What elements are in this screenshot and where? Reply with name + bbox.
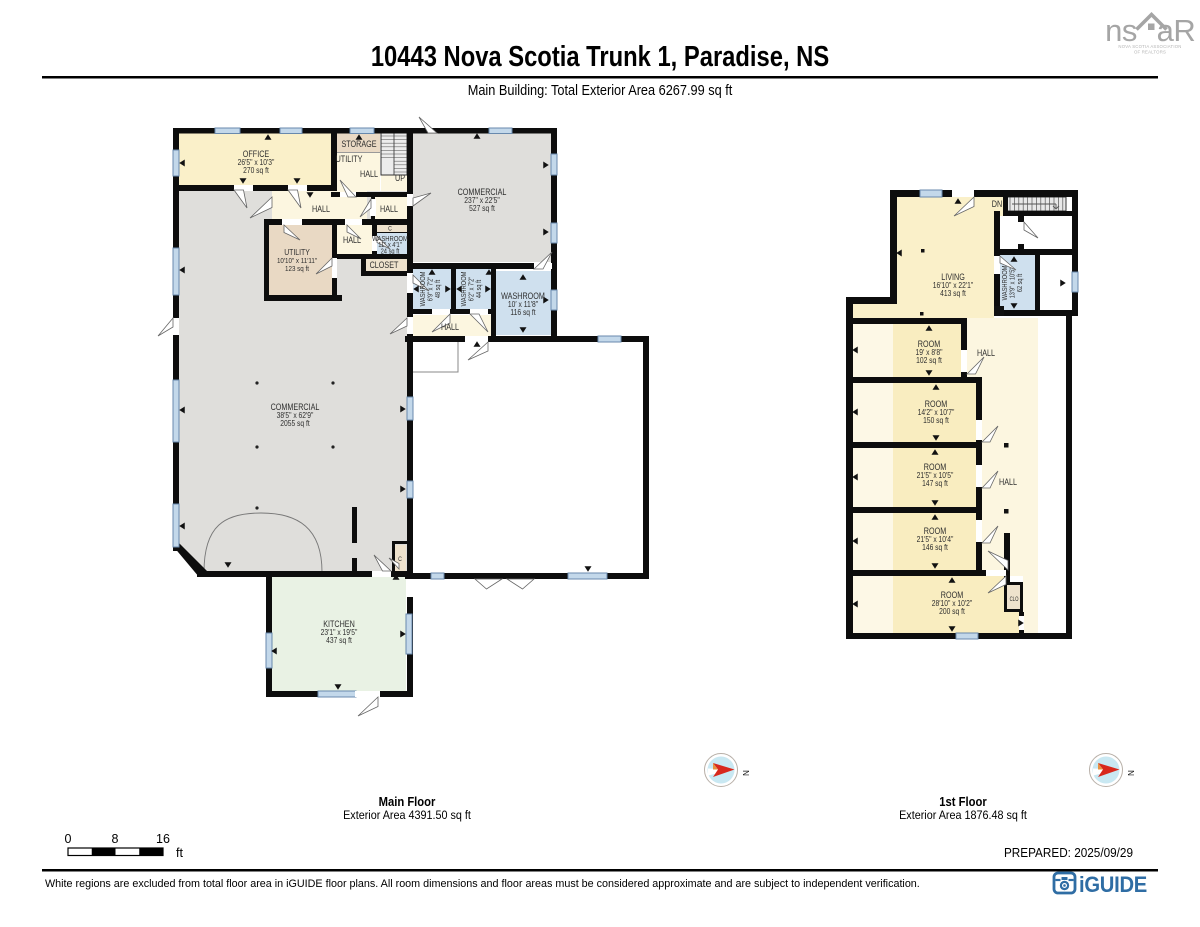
svg-text:HALL: HALL: [343, 235, 361, 245]
svg-text:62 sq ft: 62 sq ft: [1016, 274, 1024, 293]
svg-text:Main Floor: Main Floor: [379, 794, 436, 809]
svg-text:HALL: HALL: [977, 348, 995, 358]
svg-text:C: C: [398, 557, 402, 564]
svg-text:UTILITY: UTILITY: [336, 154, 363, 164]
svg-text:2055 sq ft: 2055 sq ft: [280, 418, 310, 428]
svg-text:146 sq ft: 146 sq ft: [922, 542, 949, 552]
svg-text:44 sq ft: 44 sq ft: [475, 280, 483, 299]
svg-text:102 sq ft: 102 sq ft: [916, 355, 943, 365]
svg-text:HALL: HALL: [380, 204, 398, 214]
svg-text:N: N: [741, 770, 750, 776]
svg-text:UP: UP: [395, 173, 405, 183]
svg-text:8: 8: [112, 832, 119, 846]
svg-text:aR: aR: [1157, 13, 1196, 48]
svg-text:PREPARED: 2025/09/29: PREPARED: 2025/09/29: [1004, 846, 1133, 860]
svg-text:48 sq ft: 48 sq ft: [434, 280, 442, 299]
svg-text:437 sq ft: 437 sq ft: [326, 635, 353, 645]
svg-text:24 sq ft: 24 sq ft: [381, 248, 400, 256]
svg-text:CLOSET: CLOSET: [370, 260, 399, 270]
svg-text:527 sq ft: 527 sq ft: [469, 203, 496, 213]
svg-text:C: C: [388, 226, 392, 233]
svg-text:ns: ns: [1105, 13, 1137, 48]
svg-text:116 sq ft: 116 sq ft: [510, 307, 536, 317]
svg-text:0: 0: [65, 832, 72, 846]
svg-text:OF REALTORS: OF REALTORS: [1134, 50, 1166, 55]
svg-text:NOVA SCOTIA ASSOCIATION: NOVA SCOTIA ASSOCIATION: [1118, 44, 1181, 49]
svg-text:HALL: HALL: [999, 477, 1017, 487]
svg-text:HALL: HALL: [312, 204, 330, 214]
svg-text:16: 16: [156, 832, 170, 846]
svg-text:1st Floor: 1st Floor: [939, 794, 987, 809]
svg-text:iGUIDE: iGUIDE: [1079, 873, 1147, 897]
svg-text:413 sq ft: 413 sq ft: [940, 288, 967, 298]
svg-text:150 sq ft: 150 sq ft: [923, 415, 950, 425]
svg-text:10443 Nova Scotia Trunk 1, Par: 10443 Nova Scotia Trunk 1, Paradise, NS: [371, 40, 829, 73]
svg-text:N: N: [1126, 770, 1135, 776]
svg-text:DN: DN: [992, 199, 1003, 209]
svg-text:UTILITY: UTILITY: [284, 247, 310, 257]
svg-text:Exterior Area 4391.50 sq ft: Exterior Area 4391.50 sq ft: [343, 810, 472, 823]
svg-text:ft: ft: [176, 846, 183, 860]
svg-text:270 sq ft: 270 sq ft: [243, 165, 270, 175]
svg-text:STORAGE: STORAGE: [341, 139, 377, 149]
svg-text:HALL: HALL: [360, 169, 378, 179]
svg-text:Exterior Area 1876.48 sq ft: Exterior Area 1876.48 sq ft: [899, 810, 1028, 823]
svg-text:200 sq ft: 200 sq ft: [939, 606, 966, 616]
svg-text:HALL: HALL: [441, 322, 459, 332]
svg-text:147 sq ft: 147 sq ft: [922, 478, 949, 488]
svg-text:CLO: CLO: [1010, 596, 1019, 603]
svg-text:Main Building: Total Exterior: Main Building: Total Exterior Area 6267.…: [468, 81, 733, 98]
svg-text:123 sq ft: 123 sq ft: [285, 266, 309, 274]
svg-text:White regions are excluded fro: White regions are excluded from total fl…: [45, 878, 920, 890]
svg-text:10′10" x 11′11": 10′10" x 11′11": [277, 258, 318, 266]
